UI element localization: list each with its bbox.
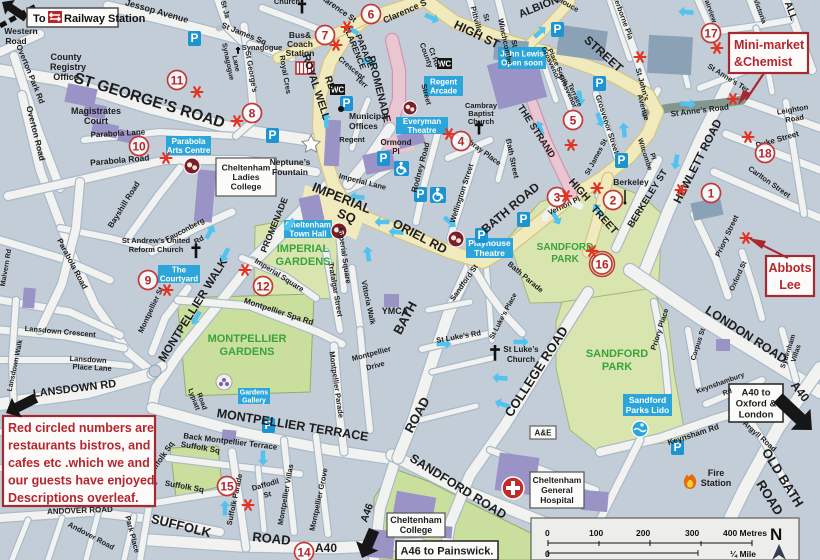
svg-text:MONTPELLIER: MONTPELLIER bbox=[208, 333, 287, 345]
svg-text:Parks Lido: Parks Lido bbox=[626, 405, 669, 415]
svg-text:To: To bbox=[33, 13, 46, 25]
svg-text:Cheltenham: Cheltenham bbox=[390, 515, 442, 525]
svg-text:Reform Church: Reform Church bbox=[129, 245, 184, 254]
svg-text:Pl: Pl bbox=[392, 147, 400, 156]
svg-text:Theatre: Theatre bbox=[474, 248, 505, 258]
svg-text:Red circled numbers arerestaur: Red circled numbers arerestaurants bistr… bbox=[8, 421, 158, 505]
svg-text:Sandford: Sandford bbox=[629, 395, 666, 405]
svg-text:A40 to: A40 to bbox=[741, 387, 770, 398]
svg-text:Court: Court bbox=[84, 116, 108, 126]
svg-text:100: 100 bbox=[589, 528, 603, 538]
svg-text:10: 10 bbox=[132, 139, 146, 153]
svg-text:IMPERIAL: IMPERIAL bbox=[277, 243, 330, 255]
svg-text:Town Hall: Town Hall bbox=[289, 230, 326, 239]
svg-text:1: 1 bbox=[708, 186, 715, 200]
svg-text:Berkeley: Berkeley bbox=[613, 177, 649, 187]
svg-text:&Chemist: &Chemist bbox=[734, 55, 793, 69]
svg-text:Church: Church bbox=[274, 0, 301, 6]
svg-text:12: 12 bbox=[256, 279, 270, 293]
svg-text:College: College bbox=[231, 182, 262, 192]
svg-text:SANDFORD: SANDFORD bbox=[537, 242, 594, 253]
svg-text:¼ Mile: ¼ Mile bbox=[730, 549, 756, 559]
svg-text:Courtyard: Courtyard bbox=[160, 275, 198, 284]
svg-text:Neptune’s: Neptune’s bbox=[270, 157, 311, 167]
svg-text:Ladies: Ladies bbox=[233, 172, 260, 182]
svg-text:Cheltenham: Cheltenham bbox=[222, 163, 271, 173]
svg-text:Ormond: Ormond bbox=[380, 138, 411, 147]
svg-text:Railway Station: Railway Station bbox=[64, 13, 146, 25]
svg-text:P: P bbox=[268, 128, 276, 142]
svg-text:Western: Western bbox=[4, 26, 37, 36]
svg-text:Oxford &: Oxford & bbox=[736, 398, 777, 409]
svg-text:P: P bbox=[595, 76, 603, 90]
svg-text:8: 8 bbox=[249, 106, 256, 120]
svg-text:A&E: A&E bbox=[535, 428, 553, 437]
svg-text:Cheltenham: Cheltenham bbox=[533, 475, 582, 485]
svg-text:St Luke’s: St Luke’s bbox=[503, 345, 539, 354]
svg-text:Gardens: Gardens bbox=[240, 389, 269, 396]
svg-text:Arts Centre: Arts Centre bbox=[167, 146, 211, 155]
svg-text:Gallery: Gallery bbox=[242, 398, 266, 405]
svg-text:3: 3 bbox=[554, 190, 561, 204]
svg-text:P: P bbox=[190, 31, 198, 45]
svg-text:0: 0 bbox=[545, 528, 550, 538]
svg-text:A40: A40 bbox=[315, 541, 337, 555]
svg-text:County: County bbox=[51, 52, 82, 62]
svg-text:11: 11 bbox=[171, 73, 184, 87]
svg-text:Magistrates: Magistrates bbox=[71, 106, 121, 116]
svg-text:P: P bbox=[553, 22, 561, 36]
svg-text:Regent: Regent bbox=[339, 135, 365, 144]
svg-text:400 Metres: 400 Metres bbox=[723, 528, 767, 538]
svg-text:4: 4 bbox=[458, 134, 465, 148]
svg-text:300: 300 bbox=[685, 528, 699, 538]
svg-text:Everyman: Everyman bbox=[403, 117, 441, 126]
svg-text:N: N bbox=[770, 525, 782, 544]
svg-text:Fountain: Fountain bbox=[272, 167, 308, 177]
svg-text:P: P bbox=[519, 212, 527, 226]
svg-text:Mini-market: Mini-market bbox=[734, 38, 805, 52]
svg-text:Regent: Regent bbox=[430, 77, 457, 86]
svg-text:14: 14 bbox=[297, 545, 311, 559]
svg-text:15: 15 bbox=[220, 479, 234, 493]
svg-text:18: 18 bbox=[758, 146, 772, 160]
svg-text:Theatre: Theatre bbox=[408, 126, 437, 135]
svg-text:PARK: PARK bbox=[551, 254, 579, 265]
svg-text:London: London bbox=[739, 409, 774, 420]
svg-text:200: 200 bbox=[636, 528, 650, 538]
svg-text:Municipal: Municipal bbox=[349, 111, 388, 121]
svg-text:PARK: PARK bbox=[602, 361, 632, 373]
svg-text:2: 2 bbox=[610, 193, 617, 207]
svg-text:A46 to Painswick.: A46 to Painswick. bbox=[401, 546, 494, 558]
svg-text:6: 6 bbox=[368, 7, 375, 21]
svg-text:0: 0 bbox=[545, 549, 550, 559]
svg-text:General: General bbox=[541, 485, 573, 495]
svg-text:5: 5 bbox=[570, 113, 577, 127]
svg-text:7: 7 bbox=[322, 28, 329, 42]
svg-text:St Andrew’s United: St Andrew’s United bbox=[122, 236, 191, 245]
svg-text:SANDFORD: SANDFORD bbox=[586, 348, 648, 360]
svg-text:P: P bbox=[379, 151, 387, 165]
svg-text:Arcade: Arcade bbox=[430, 87, 458, 96]
svg-text:Abbots: Abbots bbox=[768, 261, 811, 275]
svg-text:Playhouse: Playhouse bbox=[468, 238, 511, 248]
svg-text:The: The bbox=[172, 265, 187, 274]
svg-text:Church: Church bbox=[468, 117, 495, 126]
svg-text:Parabola: Parabola bbox=[172, 137, 206, 146]
svg-text:Lee: Lee bbox=[779, 278, 801, 292]
svg-text:Church: Church bbox=[507, 355, 535, 364]
svg-text:College: College bbox=[400, 525, 433, 535]
svg-text:17: 17 bbox=[704, 26, 718, 40]
svg-text:GARDENS: GARDENS bbox=[219, 346, 274, 358]
svg-text:Station: Station bbox=[701, 478, 732, 488]
svg-text:9: 9 bbox=[145, 273, 152, 287]
svg-text:GARDENS: GARDENS bbox=[275, 256, 330, 268]
svg-text:Fire: Fire bbox=[708, 468, 725, 478]
svg-text:P: P bbox=[617, 153, 625, 167]
svg-text:Hospital: Hospital bbox=[540, 495, 574, 505]
svg-text:Offices: Offices bbox=[349, 121, 378, 131]
svg-text:16: 16 bbox=[595, 257, 609, 271]
